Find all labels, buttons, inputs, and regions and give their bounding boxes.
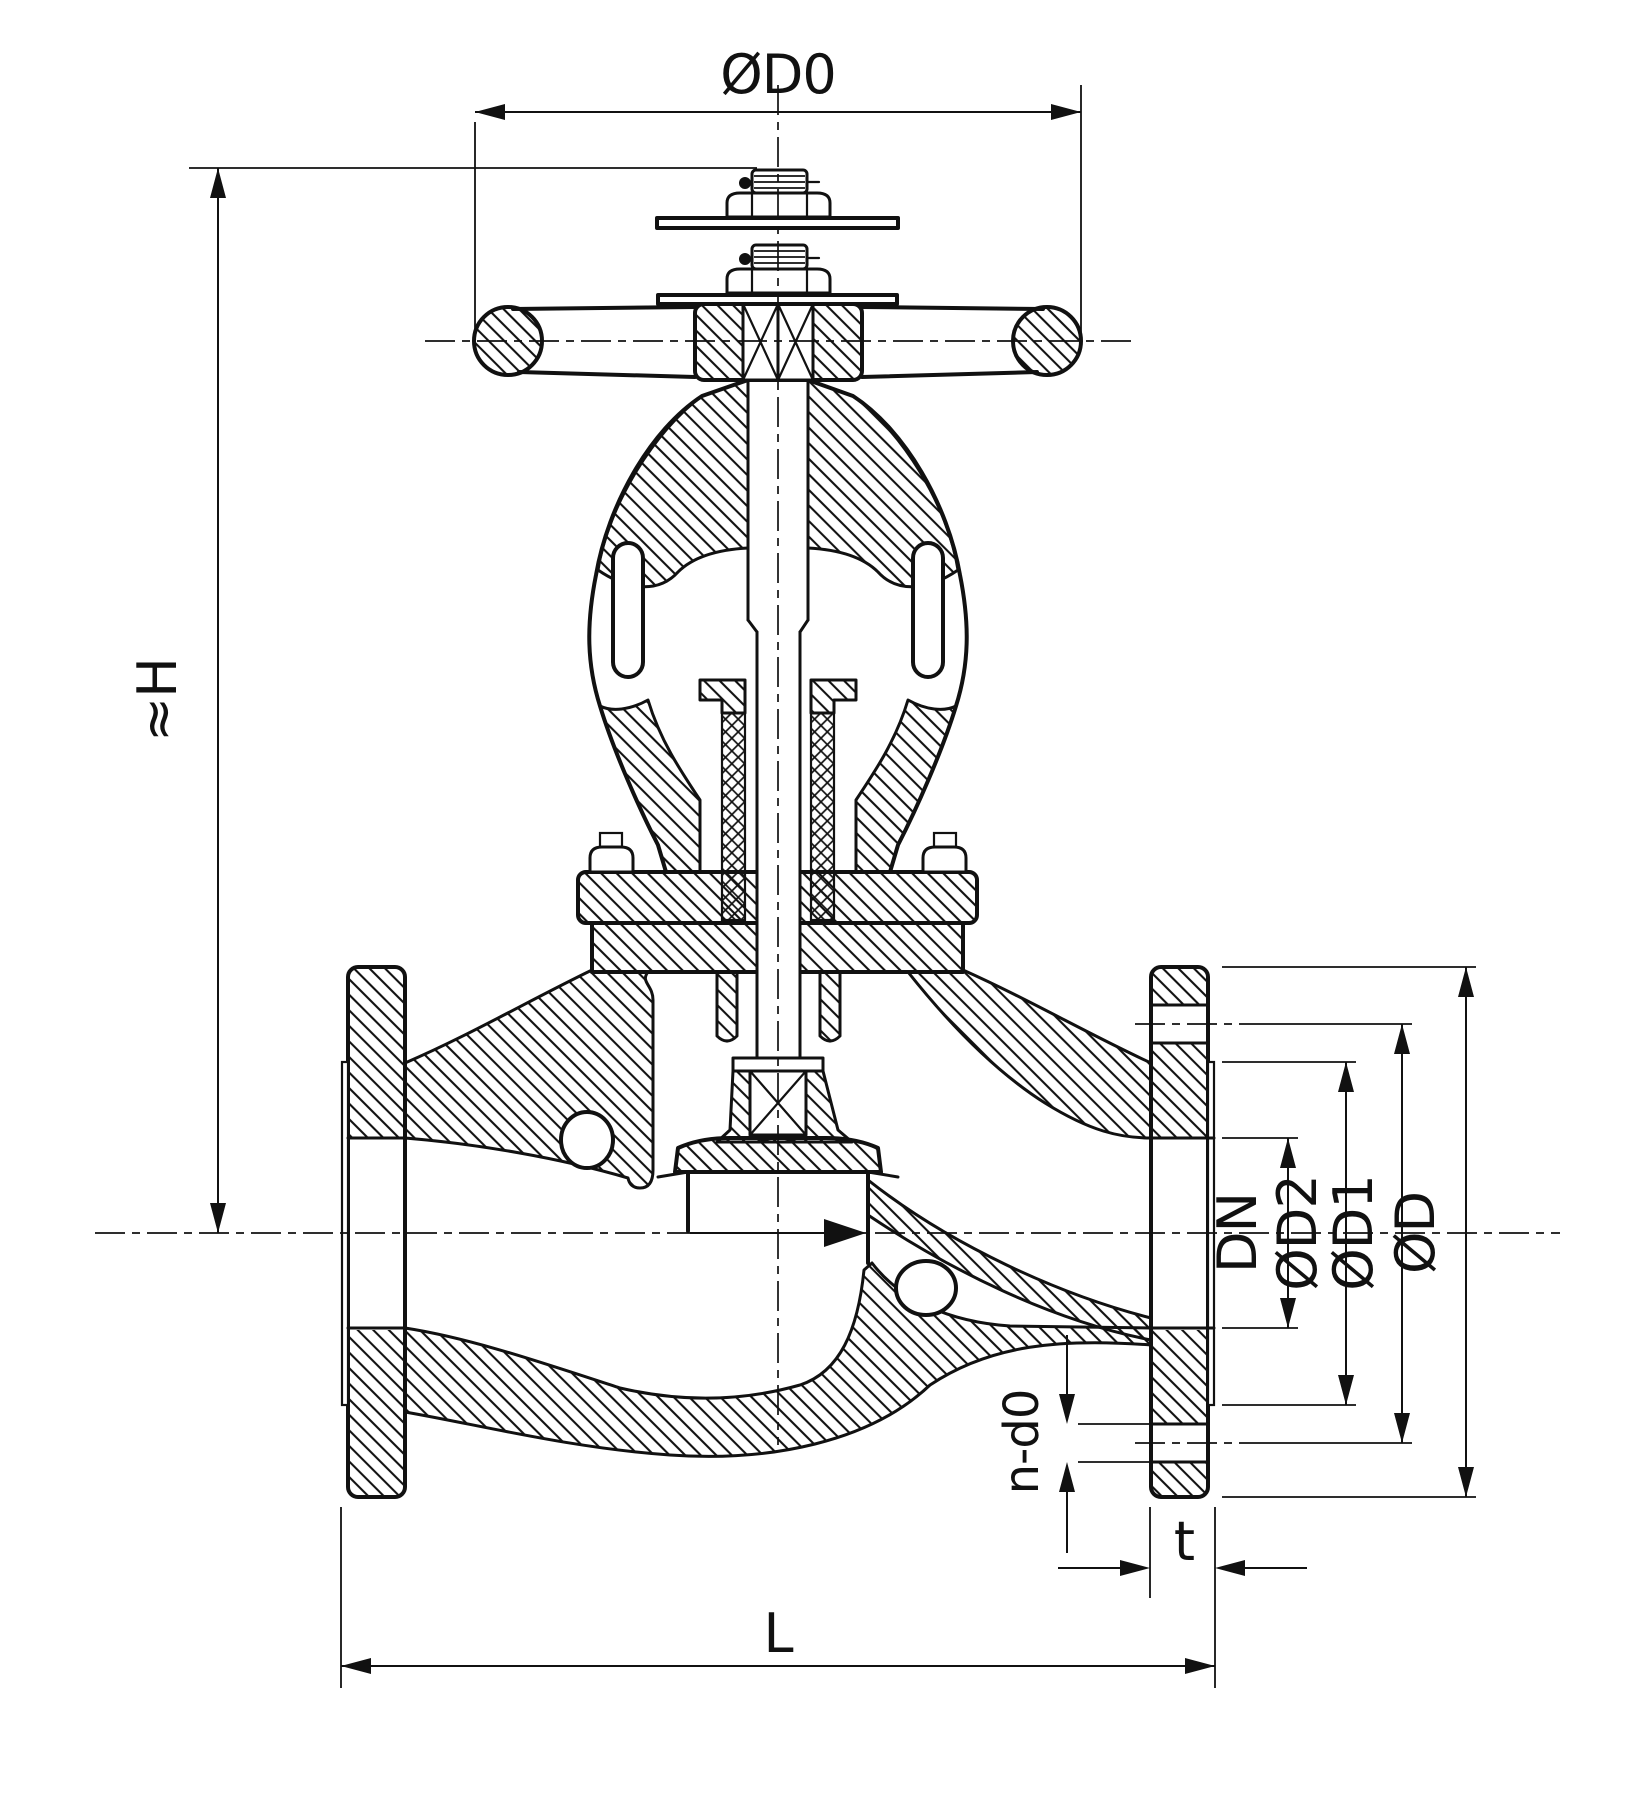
label-od: ØD	[1384, 1192, 1447, 1274]
stuffing-box-right	[820, 972, 840, 1041]
dimension-l: L	[341, 1507, 1215, 1688]
body-outlet-upper-wall	[908, 970, 1151, 1138]
bonnet-bolt-right	[923, 833, 966, 872]
body-inlet-upper-wall	[405, 970, 653, 1188]
outlet-rib-hole	[896, 1261, 956, 1315]
stuffing-box-left	[717, 972, 737, 1041]
inlet-rib-hole	[561, 1112, 613, 1168]
label-dn: DN	[1206, 1193, 1269, 1273]
left-flange	[342, 967, 405, 1497]
label-od2: ØD2	[1266, 1175, 1329, 1290]
bonnet-bolt-left	[590, 833, 633, 872]
label-nd0: n-d0	[994, 1390, 1050, 1495]
dimension-t: t	[1058, 1507, 1307, 1598]
drawing-sheet: ØD0 ≈H L t n-d0 DN	[0, 0, 1638, 1794]
label-h: ≈H	[126, 658, 189, 742]
right-flange	[1151, 967, 1214, 1497]
yoke-slot-right	[913, 543, 943, 677]
globe-valve-section-drawing: ØD0 ≈H L t n-d0 DN	[0, 0, 1638, 1794]
label-l: L	[763, 1602, 793, 1665]
dimension-nd0: n-d0	[994, 1335, 1160, 1553]
label-od0: ØD0	[720, 43, 835, 106]
yoke-slot-left	[613, 543, 643, 677]
label-od1: ØD1	[1322, 1175, 1385, 1290]
label-t: t	[1174, 1510, 1194, 1573]
